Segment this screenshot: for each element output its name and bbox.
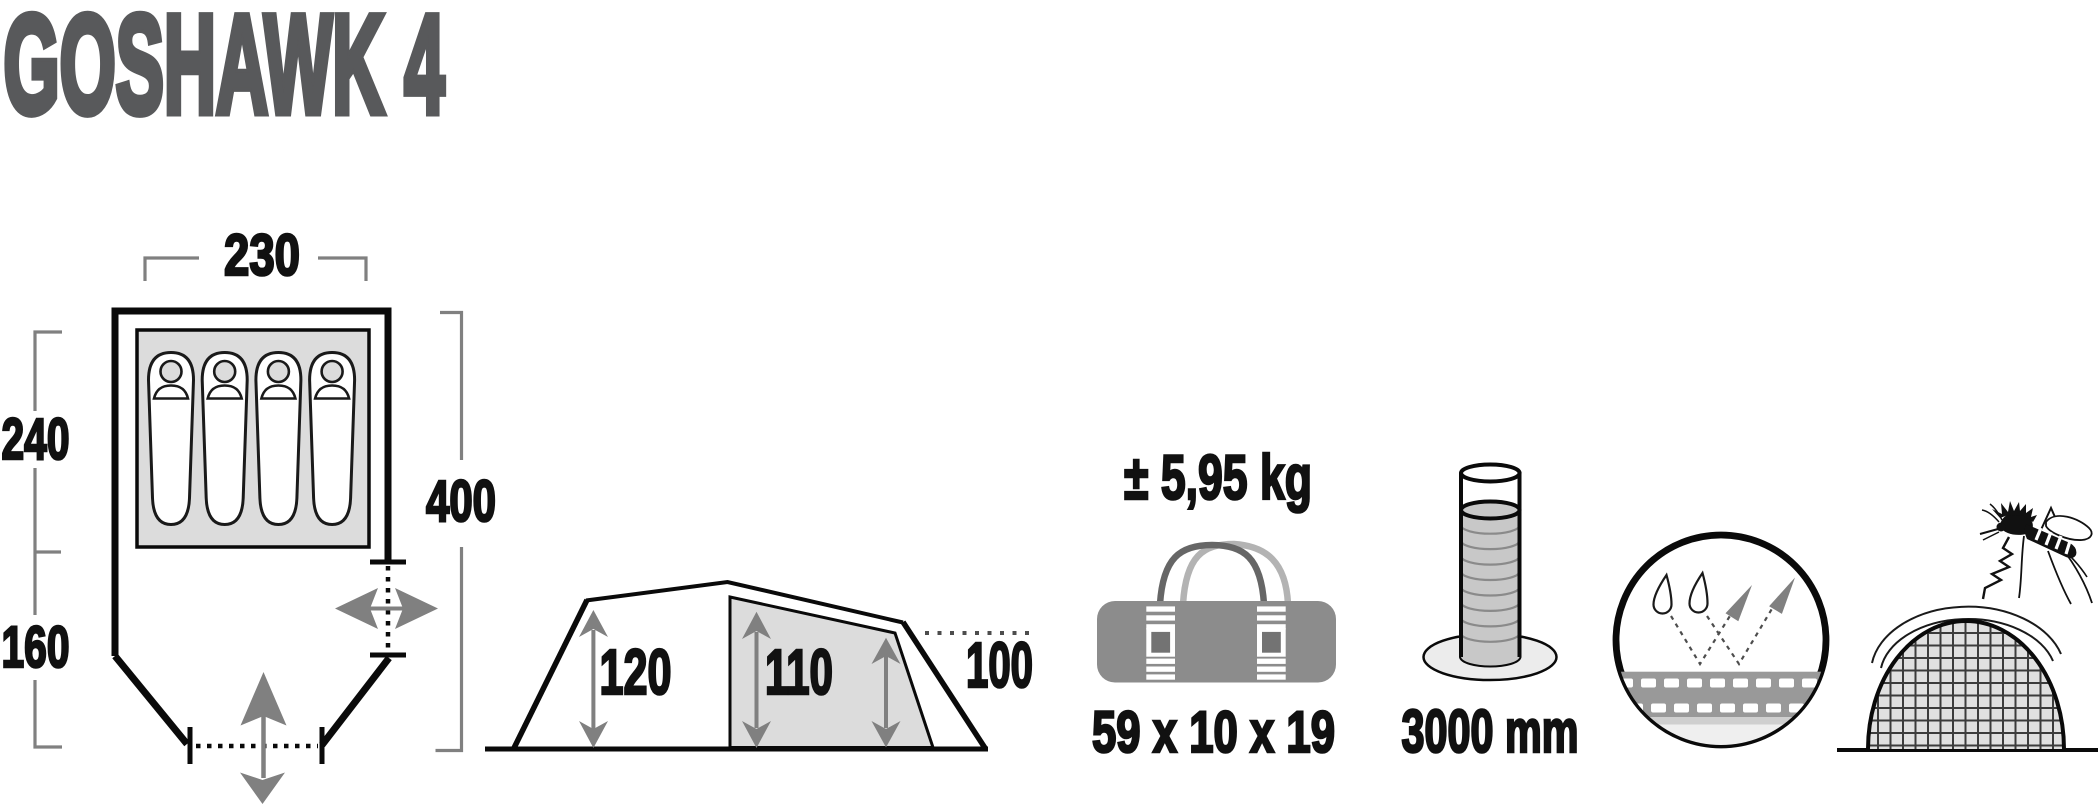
svg-text:59 x 10 x 19: 59 x 10 x 19 [1092,700,1335,765]
svg-text:230: 230 [224,223,300,288]
svg-text:3000 mm: 3000 mm [1402,698,1579,765]
svg-text:GOSHAWK 4: GOSHAWK 4 [4,0,445,143]
svg-text:± 5,95 kg: ± 5,95 kg [1124,443,1312,513]
svg-text:400: 400 [426,469,496,534]
svg-text:110: 110 [765,636,833,708]
svg-text:120: 120 [600,636,672,708]
svg-text:100: 100 [966,629,1033,701]
svg-text:160: 160 [2,615,70,680]
svg-text:240: 240 [2,407,70,472]
